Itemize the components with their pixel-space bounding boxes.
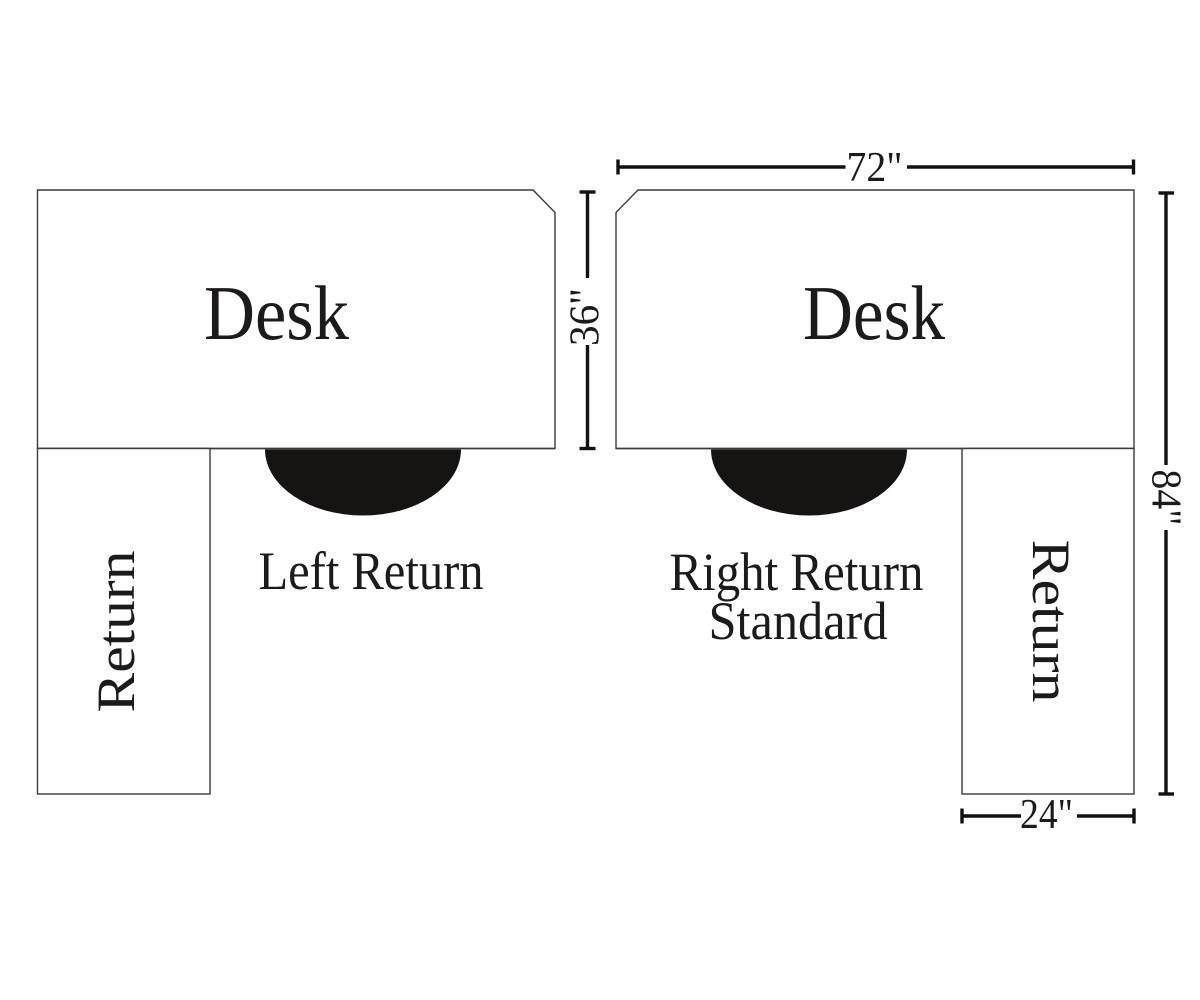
svg-text:Standard: Standard — [709, 591, 888, 651]
svg-text:24": 24" — [1020, 791, 1073, 838]
svg-text:36": 36" — [562, 288, 609, 346]
svg-text:Desk: Desk — [204, 270, 349, 356]
svg-text:84": 84" — [1143, 470, 1190, 526]
svg-text:72": 72" — [847, 144, 903, 191]
svg-text:Return: Return — [86, 551, 146, 713]
svg-text:Return: Return — [1021, 540, 1081, 703]
svg-text:Left Return: Left Return — [259, 541, 484, 601]
svg-text:Desk: Desk — [803, 270, 945, 356]
